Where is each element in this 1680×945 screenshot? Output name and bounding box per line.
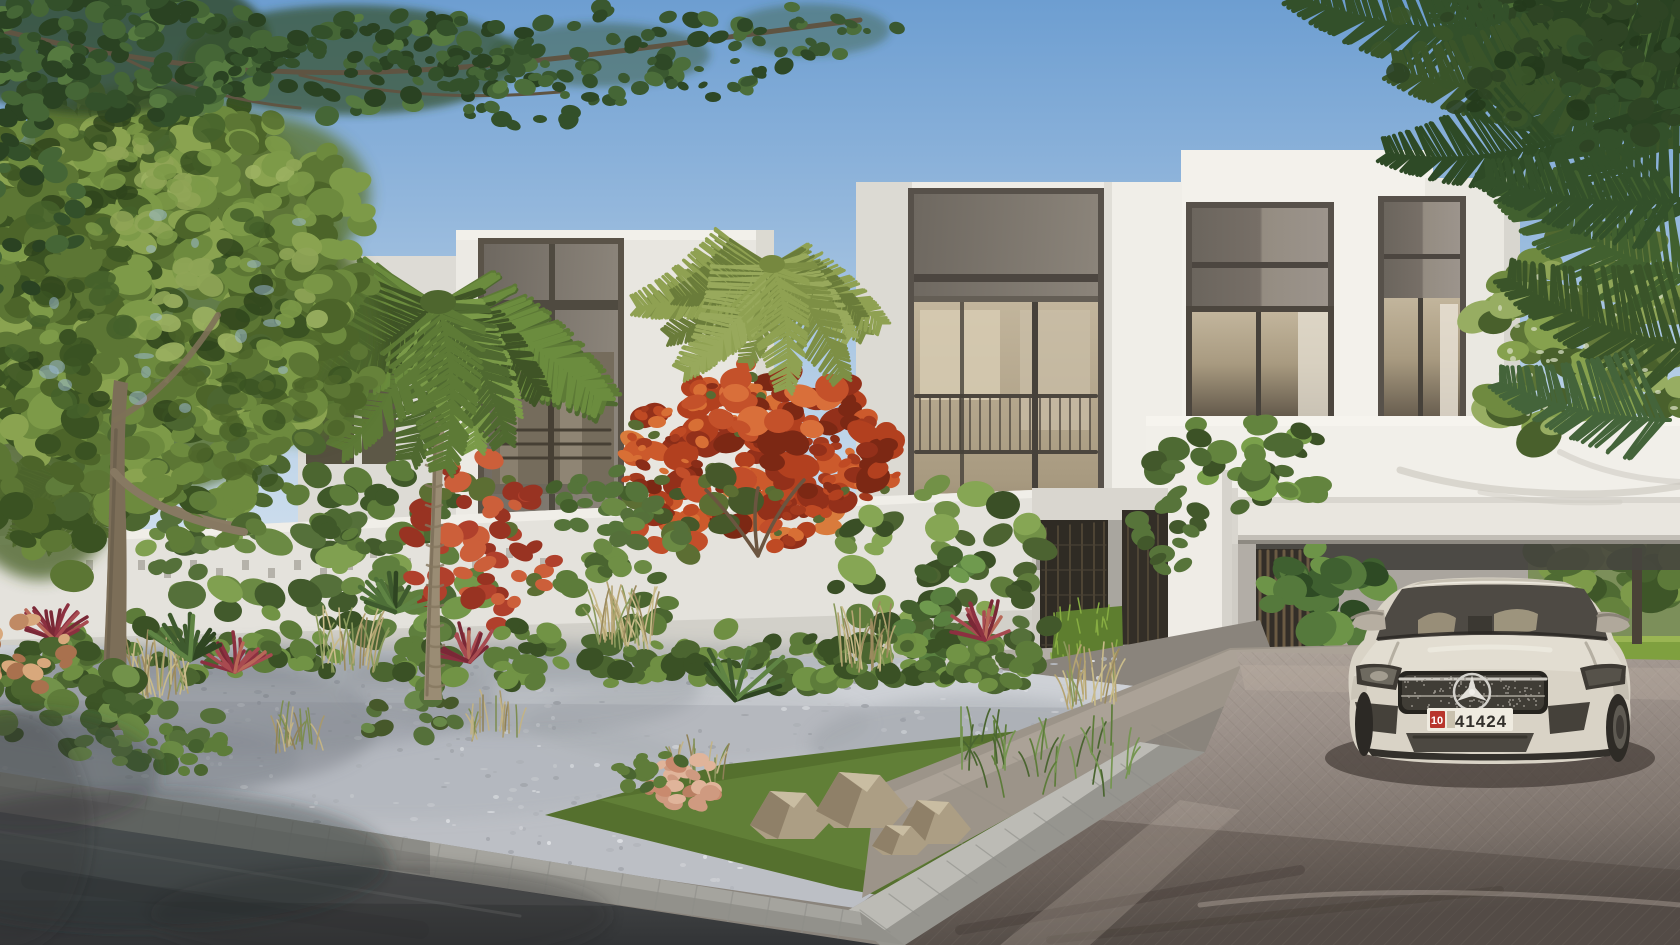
svg-text:41424: 41424 [1455,712,1507,731]
svg-text:10: 10 [1431,715,1443,727]
